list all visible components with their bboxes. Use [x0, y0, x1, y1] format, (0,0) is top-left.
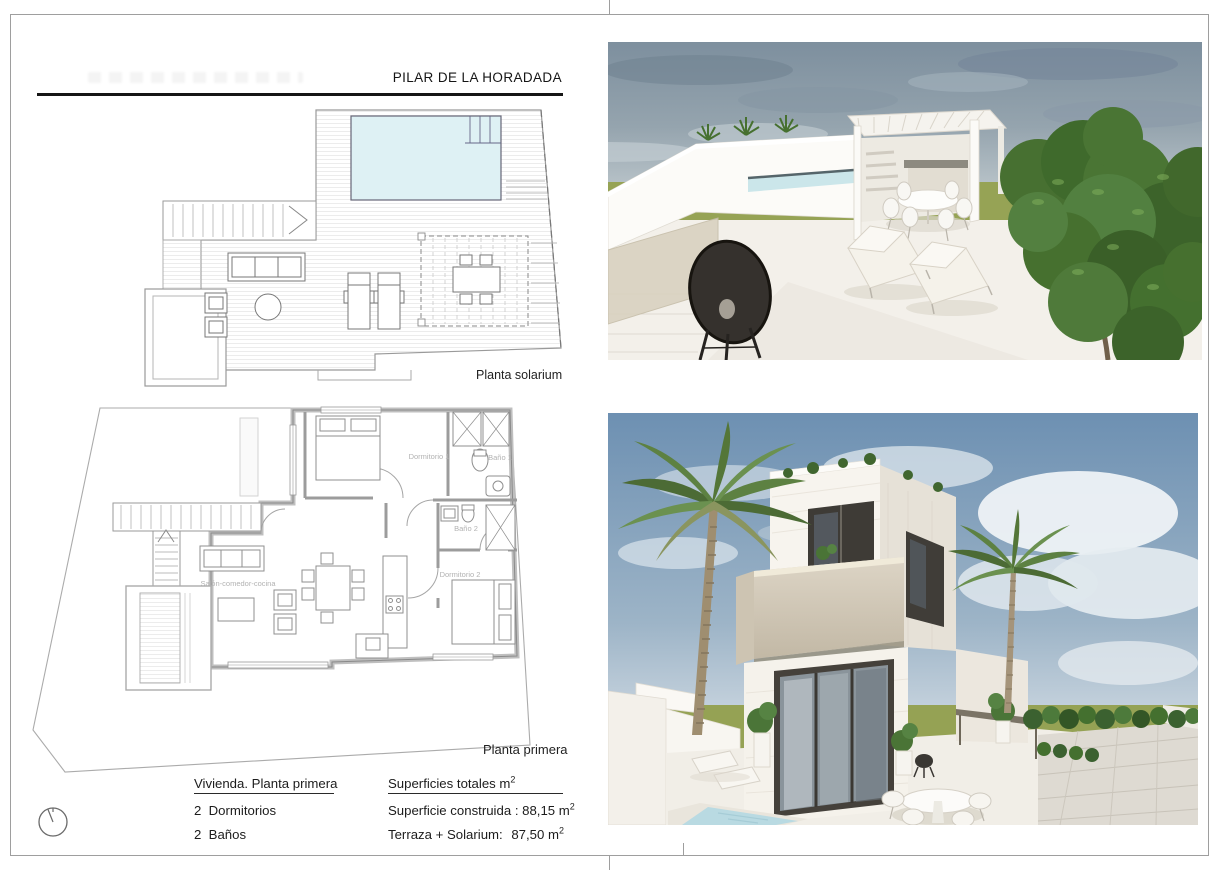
primera-terrace [126, 586, 211, 690]
label-dormitorio-2: Dormitorio 2 [440, 570, 481, 579]
solarium-caption: Planta solarium [476, 368, 562, 382]
page-title: PILAR DE LA HORADADA [330, 70, 562, 85]
terraza-label: Terraza + Solarium: [388, 827, 503, 842]
north-arrow-icon [36, 805, 70, 839]
label-dormitorio-1: Dormitorio 1 [409, 452, 450, 461]
header-logo-faint [88, 72, 303, 83]
plan-sheet: PILAR DE LA HORADADA [0, 0, 1220, 870]
render-villa-exterior [608, 413, 1198, 825]
bed-dormitorio-2 [452, 580, 515, 644]
terraza-solarium: Terraza + Solarium: 87,50 m2 [388, 827, 564, 842]
primera-caption: Planta primera [483, 742, 568, 757]
solarium-floor-plan: Planta solarium [133, 103, 578, 390]
primera-floor-plan: Dormitorio 1 Baño 1 Baño 2 Dormitorio 2 … [28, 398, 588, 776]
render-roof-terrace [608, 42, 1202, 360]
bed-dormitorio-1 [316, 416, 380, 480]
label-salon: Salón-comedor-cocina [200, 579, 276, 588]
bedrooms-count: 2 Dormitorios [194, 803, 344, 818]
solarium-sofa [228, 253, 305, 281]
label-bano-2: Baño 2 [454, 524, 478, 533]
registration-tick-bottom [609, 855, 610, 870]
superficie-construida: Superficie construida : 88,15 m2 [388, 803, 564, 818]
superficies-summary: Superficies totales m2 Superficie constr… [388, 776, 564, 842]
vivienda-title: Vivienda. Planta primera [194, 776, 334, 794]
registration-tick-bottom-short [683, 843, 684, 855]
salon-sofa [200, 546, 264, 571]
terraza-value: 87,50 m2 [511, 827, 564, 842]
solarium-coffee-table [255, 294, 281, 320]
title-rule [37, 93, 563, 96]
vivienda-summary: Vivienda. Planta primera 2 Dormitorios 2… [194, 776, 344, 842]
villa-paving [1038, 721, 1198, 825]
registration-tick-top [609, 0, 610, 14]
salon-coffee-table [218, 598, 254, 621]
solarium-pool [351, 116, 501, 200]
label-bano-1: Baño 1 [488, 453, 512, 462]
superficies-title: Superficies totales m2 [388, 776, 563, 794]
bathrooms-count: 2 Baños [194, 827, 344, 842]
